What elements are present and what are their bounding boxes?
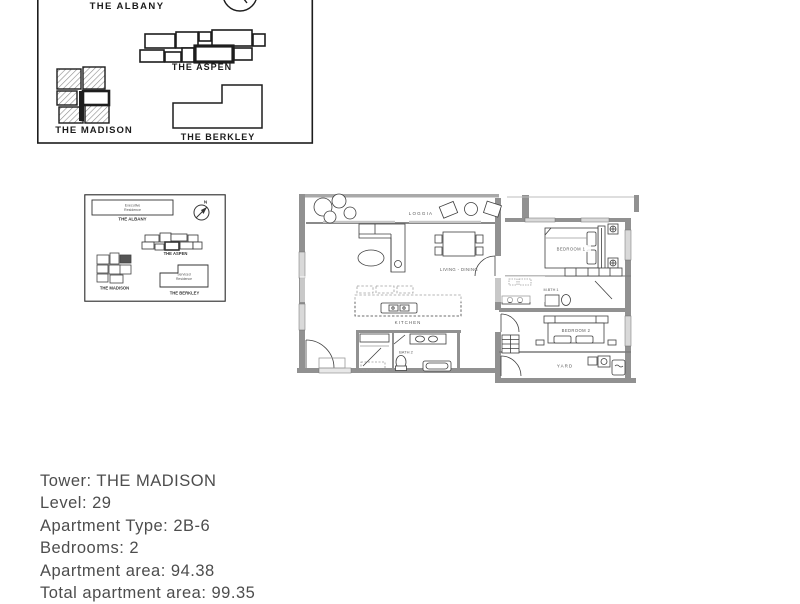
page: { "large_map": { "albany": "THE ALBANY",… — [0, 0, 800, 600]
bedroom2-furniture — [502, 316, 616, 353]
hall-closet — [360, 334, 389, 370]
small-map-madison-label: THE MADISON — [100, 286, 129, 291]
dining-set — [435, 232, 483, 256]
small-map-compass-n: N — [204, 200, 208, 205]
detail-total-area: Total apartment area: 99.35 — [40, 582, 255, 604]
watermark-band — [300, 276, 545, 302]
small-site-map: Executive Residence THE ALBANY N THE ASP… — [84, 194, 226, 302]
small-map-aspen-building — [142, 233, 202, 250]
room-label-kitchen: KITCHEN — [395, 320, 422, 325]
small-map-compass-icon: N — [194, 200, 209, 221]
small-map-albany-type-2: Residence — [124, 208, 141, 212]
detail-apartment-area: Apartment area: 94.38 — [40, 560, 255, 582]
room-label-bedroom2: BEDROOM 2 — [562, 328, 591, 333]
small-map-albany-building: Executive Residence — [92, 200, 173, 215]
detail-tower: Tower: THE MADISON — [40, 470, 255, 492]
room-label-living-dining: LIVING - DINING — [440, 267, 478, 272]
room-label-loggia: LOGGIA — [409, 211, 433, 216]
large-map-aspen-label: THE ASPEN — [172, 62, 232, 72]
large-map-berkley-label: THE BERKLEY — [181, 132, 256, 142]
floor-plan: LOGGIA LIVING - DINING BEDROOM 1 M.BTH 1… — [293, 190, 648, 390]
coffee-table — [358, 250, 384, 266]
apartment-details: Tower: THE MADISON Level: 29 Apartment T… — [40, 470, 255, 604]
entry-door — [306, 340, 345, 368]
large-map-berkley-building — [173, 85, 262, 128]
yard-fixtures — [588, 356, 625, 375]
small-map-albany-label: THE ALBANY — [118, 217, 146, 222]
large-map-madison-building — [57, 67, 109, 123]
large-map-madison-label: THE MADISON — [55, 125, 133, 136]
room-label-bedroom1: BEDROOM 1 — [557, 247, 586, 252]
room-label-bath2: BATH 2 — [399, 350, 413, 355]
room-label-master-bath: M.BTH 1 — [544, 288, 559, 292]
large-map-compass-icon — [223, 0, 257, 11]
kitchen-island — [381, 303, 417, 313]
small-map-madison-building — [97, 253, 131, 283]
large-map-albany-label: THE ALBANY — [90, 1, 165, 12]
small-map-berkley-building: Serviced Residence — [160, 265, 208, 287]
detail-level: Level: 29 — [40, 492, 255, 514]
large-map-aspen-building — [140, 30, 265, 62]
detail-bedrooms: Bedrooms: 2 — [40, 537, 255, 559]
large-site-map: THE ALBANY THE ASPEN THE MADISON THE BER… — [37, 0, 319, 147]
loggia-furniture — [314, 194, 501, 223]
small-map-berkley-type-2: Residence — [176, 277, 192, 281]
small-map-albany-type-1: Executive — [125, 204, 141, 208]
small-map-berkley-label: THE BERKLEY — [170, 291, 200, 296]
room-label-yard: YARD — [557, 364, 573, 369]
small-map-aspen-label: THE ASPEN — [164, 251, 188, 256]
detail-apartment-type: Apartment Type: 2B-6 — [40, 515, 255, 537]
